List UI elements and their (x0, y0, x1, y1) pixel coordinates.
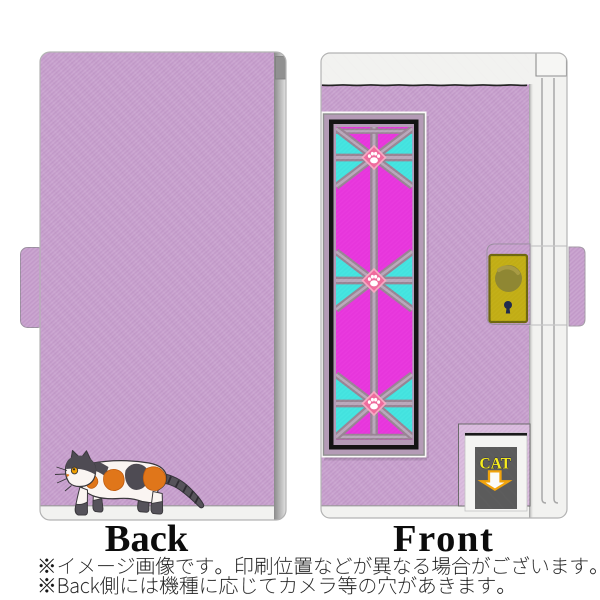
svg-text:Back: Back (105, 518, 189, 560)
svg-text:CAT: CAT (480, 455, 512, 472)
svg-text:Front: Front (393, 518, 494, 560)
